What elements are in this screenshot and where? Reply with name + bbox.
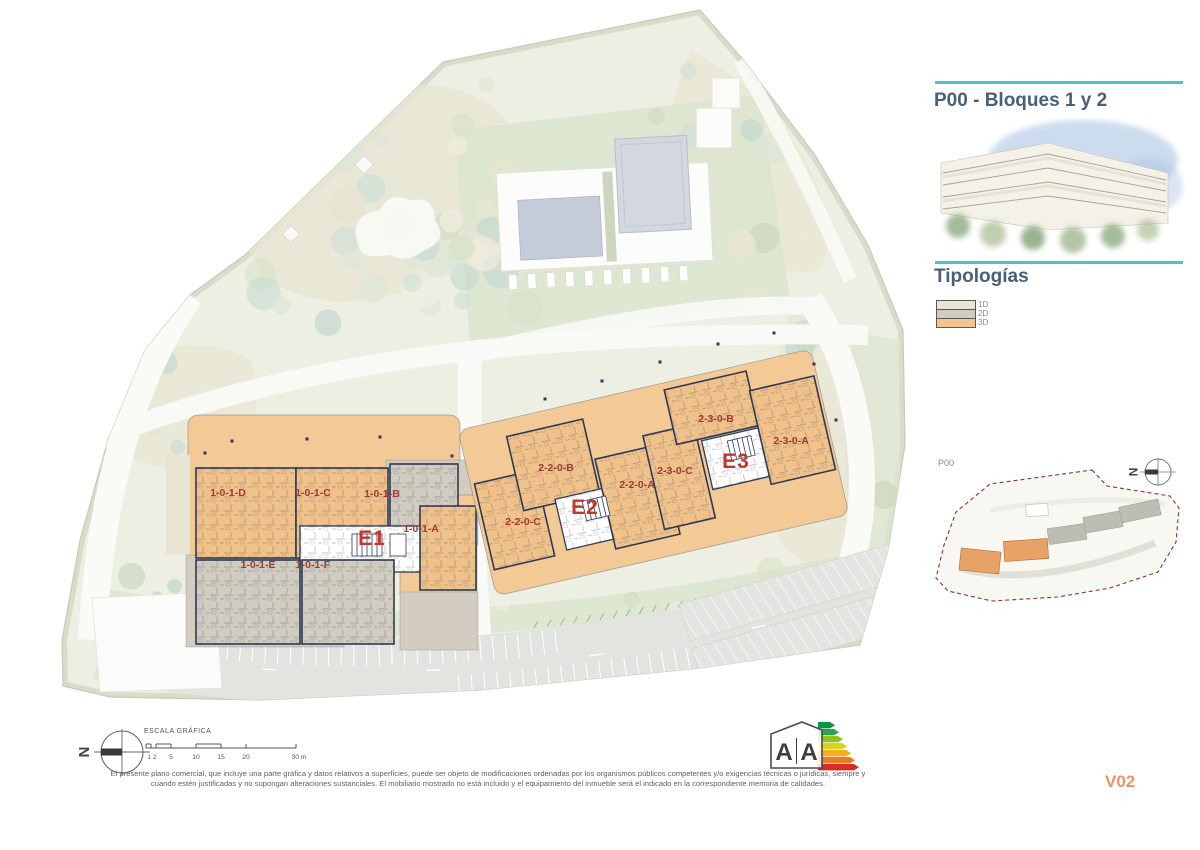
site-plan: 1-0-1-D 1-0-1-C 1-0-1-B 1-0-1-A 1-0-1-E … bbox=[0, 0, 920, 775]
unit-label-1-0-1-b: 1-0-1-B bbox=[364, 488, 400, 500]
unit-interior-detail bbox=[420, 506, 476, 590]
tree-circle bbox=[170, 440, 185, 455]
tree-circle bbox=[476, 199, 495, 218]
energy-letter-left: A bbox=[775, 739, 792, 766]
unit-label-1-0-1-c: 1-0-1-C bbox=[295, 487, 331, 499]
page-title: P00 - Bloques 1 y 2 bbox=[934, 90, 1107, 112]
tree-circle bbox=[323, 99, 350, 126]
tree-circle bbox=[829, 68, 860, 99]
unit-label-2-3-0-b: 2-3-0-B bbox=[698, 413, 734, 425]
scale-tick: 5 bbox=[169, 754, 173, 761]
unit-label-2-2-0-c: 2-2-0-C bbox=[505, 516, 541, 528]
tree-circle bbox=[272, 296, 290, 314]
scale-tick: 1 2 bbox=[147, 754, 157, 761]
tree-circle bbox=[624, 595, 638, 609]
sun-lounger bbox=[528, 273, 537, 288]
unit-label-2-2-0-b: 2-2-0-B bbox=[538, 462, 574, 474]
unit-interior-detail bbox=[196, 560, 300, 644]
divider-line bbox=[935, 81, 1183, 84]
building-render-image bbox=[933, 118, 1185, 258]
unit-interior-detail bbox=[302, 560, 394, 644]
club-building-roof bbox=[615, 135, 692, 233]
column-dot bbox=[231, 440, 234, 443]
tree-circle bbox=[783, 238, 810, 265]
tree-circle bbox=[494, 594, 511, 611]
tree-circle bbox=[452, 113, 475, 136]
tree-circle bbox=[362, 86, 391, 115]
keyplan-north-letter: N bbox=[1126, 468, 1140, 477]
unit-label-1-0-1-f: 1-0-1-F bbox=[296, 559, 331, 571]
scale-tick: 30 m bbox=[291, 754, 306, 761]
typologies-heading: Tipologías bbox=[934, 266, 1029, 288]
tree-circle bbox=[727, 230, 756, 259]
sun-lounger bbox=[660, 267, 669, 282]
disclaimer-text: El presente plano comercial, que incluye… bbox=[88, 769, 888, 789]
tree-circle bbox=[822, 56, 851, 85]
unit-label-1-0-1-e: 1-0-1-E bbox=[240, 559, 275, 571]
core-label-e1: E1 bbox=[358, 527, 386, 550]
keyplan-floor-label: P00 bbox=[938, 458, 954, 468]
column-dot bbox=[659, 361, 662, 364]
tree-circle bbox=[507, 290, 543, 326]
tree-circle bbox=[403, 273, 422, 292]
tree-circle bbox=[315, 309, 342, 336]
column-dot bbox=[306, 438, 309, 441]
column-dot bbox=[544, 398, 547, 401]
sun-lounger bbox=[622, 268, 631, 283]
core-label-e3: E3 bbox=[722, 450, 750, 473]
plan-sheet: 1-0-1-D 1-0-1-C 1-0-1-B 1-0-1-A 1-0-1-E … bbox=[0, 0, 1200, 850]
service-building bbox=[696, 108, 732, 148]
column-dot bbox=[601, 380, 604, 383]
unit-label-2-3-0-c: 2-3-0-C bbox=[657, 465, 693, 477]
core-label-e2: E2 bbox=[571, 496, 599, 519]
tree-circle bbox=[836, 115, 852, 131]
tree-circle bbox=[680, 63, 697, 80]
tree-circle bbox=[881, 611, 916, 646]
unit-label-2-3-0-a: 2-3-0-A bbox=[773, 435, 809, 447]
tree-circle bbox=[648, 108, 665, 125]
unit-label-2-2-0-a: 2-2-0-A bbox=[619, 479, 655, 491]
unit-label-1-0-1-a: 1-0-1-A bbox=[403, 523, 439, 535]
tree-circle bbox=[479, 77, 495, 93]
north-letter: N bbox=[75, 747, 92, 758]
column-dot bbox=[773, 332, 776, 335]
sun-lounger bbox=[546, 272, 555, 287]
tree-circle bbox=[448, 136, 467, 155]
sun-lounger bbox=[679, 266, 688, 281]
tree-circle bbox=[223, 158, 253, 188]
energy-certificate-icon: A A bbox=[766, 716, 861, 776]
scale-tick: 10 bbox=[192, 754, 200, 761]
scale-bar: ESCALA GRÁFICA 1 2 5 10 15 20 30 m bbox=[136, 724, 336, 766]
divider-line bbox=[935, 261, 1183, 264]
tree-circle bbox=[372, 132, 389, 149]
column-dot bbox=[379, 436, 382, 439]
pool bbox=[518, 196, 603, 260]
scale-tick: 15 bbox=[217, 754, 225, 761]
tree-circle bbox=[449, 235, 474, 260]
legend-label-3d: 3D bbox=[978, 318, 988, 328]
column-dot bbox=[451, 455, 454, 458]
column-dot bbox=[835, 419, 838, 422]
service-building bbox=[712, 78, 740, 108]
version-badge: V02 bbox=[1105, 772, 1135, 792]
tree-circle bbox=[118, 563, 145, 590]
tree-circle bbox=[342, 248, 363, 269]
sun-lounger bbox=[641, 268, 650, 283]
sun-lounger bbox=[584, 270, 593, 285]
disclaimer-line-1: El presente plano comercial, que incluye… bbox=[88, 769, 888, 779]
legend-row-3d: 3D bbox=[936, 318, 988, 328]
sun-lounger bbox=[509, 274, 518, 289]
sun-lounger bbox=[565, 271, 574, 286]
disclaimer-line-2: cuando estén justificadas y no supongan … bbox=[88, 779, 888, 789]
column-dot bbox=[204, 452, 207, 455]
unit-label-1-0-1-d: 1-0-1-D bbox=[210, 487, 246, 499]
tree-circle bbox=[740, 119, 762, 141]
tree-circle bbox=[440, 210, 463, 233]
energy-letter-right: A bbox=[800, 739, 817, 766]
parking-bay-line bbox=[392, 642, 393, 666]
typologies-legend: 1D 2D 3D bbox=[936, 301, 988, 328]
unit-interior-detail bbox=[196, 468, 296, 558]
scale-bar-title: ESCALA GRÁFICA bbox=[144, 726, 211, 735]
tree-circle bbox=[271, 148, 306, 183]
keyplan-north-arrow: N bbox=[1126, 458, 1176, 486]
keyplan-pool bbox=[1026, 503, 1049, 516]
energy-arrows bbox=[818, 722, 859, 770]
tree-circle bbox=[454, 292, 471, 309]
tree-circle bbox=[831, 283, 856, 308]
tree-circle bbox=[167, 579, 182, 594]
scale-tick: 20 bbox=[242, 754, 250, 761]
tree-circle bbox=[359, 274, 388, 303]
sun-lounger bbox=[603, 269, 612, 284]
legend-swatch-3d bbox=[936, 318, 976, 328]
column-dot bbox=[813, 363, 816, 366]
key-plan: P00 N bbox=[930, 448, 1188, 620]
column-dot bbox=[717, 343, 720, 346]
